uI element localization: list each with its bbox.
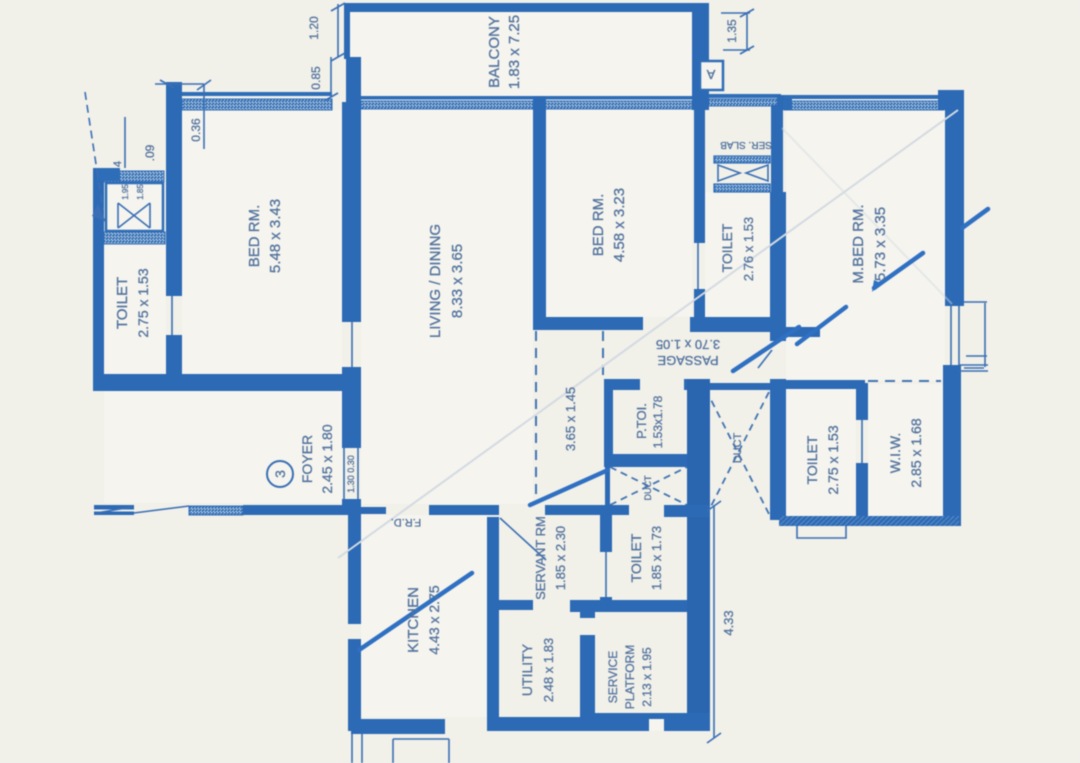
svg-text:SER. SLAB: SER. SLAB xyxy=(720,139,772,150)
svg-text:P.TOI.: P.TOI. xyxy=(634,403,649,439)
svg-text:2.75 x 1.53: 2.75 x 1.53 xyxy=(135,268,151,337)
svg-text:2.45 x 1.80: 2.45 x 1.80 xyxy=(319,424,335,493)
svg-text:1.85 x 2.30: 1.85 x 2.30 xyxy=(553,526,568,590)
svg-text:UTILITY: UTILITY xyxy=(519,643,535,696)
svg-text:DUCT: DUCT xyxy=(732,432,744,463)
svg-text:3.70 x 1.05: 3.70 x 1.05 xyxy=(656,337,720,352)
svg-text:BED RM.: BED RM. xyxy=(590,194,607,257)
svg-text:5.48 x 3.43: 5.48 x 3.43 xyxy=(267,199,284,273)
svg-text:0.36: 0.36 xyxy=(189,118,203,142)
svg-text:FOYER: FOYER xyxy=(299,435,315,483)
svg-text:SERVICE: SERVICE xyxy=(606,651,620,703)
svg-text:4.58 x 3.23: 4.58 x 3.23 xyxy=(611,188,628,262)
svg-text:1.30 0.30: 1.30 0.30 xyxy=(346,455,356,493)
svg-text:0.85: 0.85 xyxy=(309,66,323,90)
svg-text:DUCT: DUCT xyxy=(643,475,653,500)
svg-text:1.85: 1.85 xyxy=(136,184,145,200)
svg-text:TOILET: TOILET xyxy=(628,533,644,582)
svg-text:3.65 x 1.45: 3.65 x 1.45 xyxy=(563,387,578,451)
svg-text:1.83 x 7.25: 1.83 x 7.25 xyxy=(506,15,523,89)
svg-text:2.13 x 1.95: 2.13 x 1.95 xyxy=(640,647,654,707)
svg-text:SERVANT RM: SERVANT RM xyxy=(533,516,548,600)
svg-text:.09: .09 xyxy=(143,144,157,161)
svg-text:W.I.W.: W.I.W. xyxy=(887,433,903,473)
svg-text:TOILET: TOILET xyxy=(114,277,131,329)
svg-text:2.48 x 1.83: 2.48 x 1.83 xyxy=(541,638,556,702)
svg-text:A: A xyxy=(706,67,715,82)
svg-text:1.85 x 1.73: 1.85 x 1.73 xyxy=(649,526,664,590)
svg-text:BED RM.: BED RM. xyxy=(246,205,263,268)
svg-text:4.43 x 2.75: 4.43 x 2.75 xyxy=(426,585,442,654)
svg-text:KITCHEN: KITCHEN xyxy=(405,587,422,653)
svg-text:3: 3 xyxy=(272,470,288,478)
svg-text:5.73 x 3.35: 5.73 x 3.35 xyxy=(872,207,889,281)
svg-text:4.33: 4.33 xyxy=(721,610,736,635)
svg-text:1.53x1.78: 1.53x1.78 xyxy=(651,395,665,448)
svg-text:1.95: 1.95 xyxy=(121,184,130,200)
svg-text:4: 4 xyxy=(112,161,124,167)
svg-text:LIVING / DINING: LIVING / DINING xyxy=(427,224,444,338)
svg-text:PASSAGE: PASSAGE xyxy=(657,353,719,368)
svg-text:BALCONY: BALCONY xyxy=(486,16,503,88)
svg-text:2.85 x 1.68: 2.85 x 1.68 xyxy=(908,418,924,487)
svg-text:PLATFORM: PLATFORM xyxy=(623,645,637,709)
svg-text:1.35: 1.35 xyxy=(725,19,739,43)
svg-text:1.20: 1.20 xyxy=(307,16,321,40)
svg-text:2.76 x 1.53: 2.76 x 1.53 xyxy=(741,217,756,281)
svg-text:M.BED RM.: M.BED RM. xyxy=(850,204,867,283)
svg-text:8.33 x 3.65: 8.33 x 3.65 xyxy=(449,244,466,318)
svg-text:F.R.D.: F.R.D. xyxy=(391,516,422,528)
svg-text:2.75 x 1.53: 2.75 x 1.53 xyxy=(825,425,841,494)
svg-text:TOILET: TOILET xyxy=(804,435,820,484)
svg-text:TOILET: TOILET xyxy=(719,223,735,272)
